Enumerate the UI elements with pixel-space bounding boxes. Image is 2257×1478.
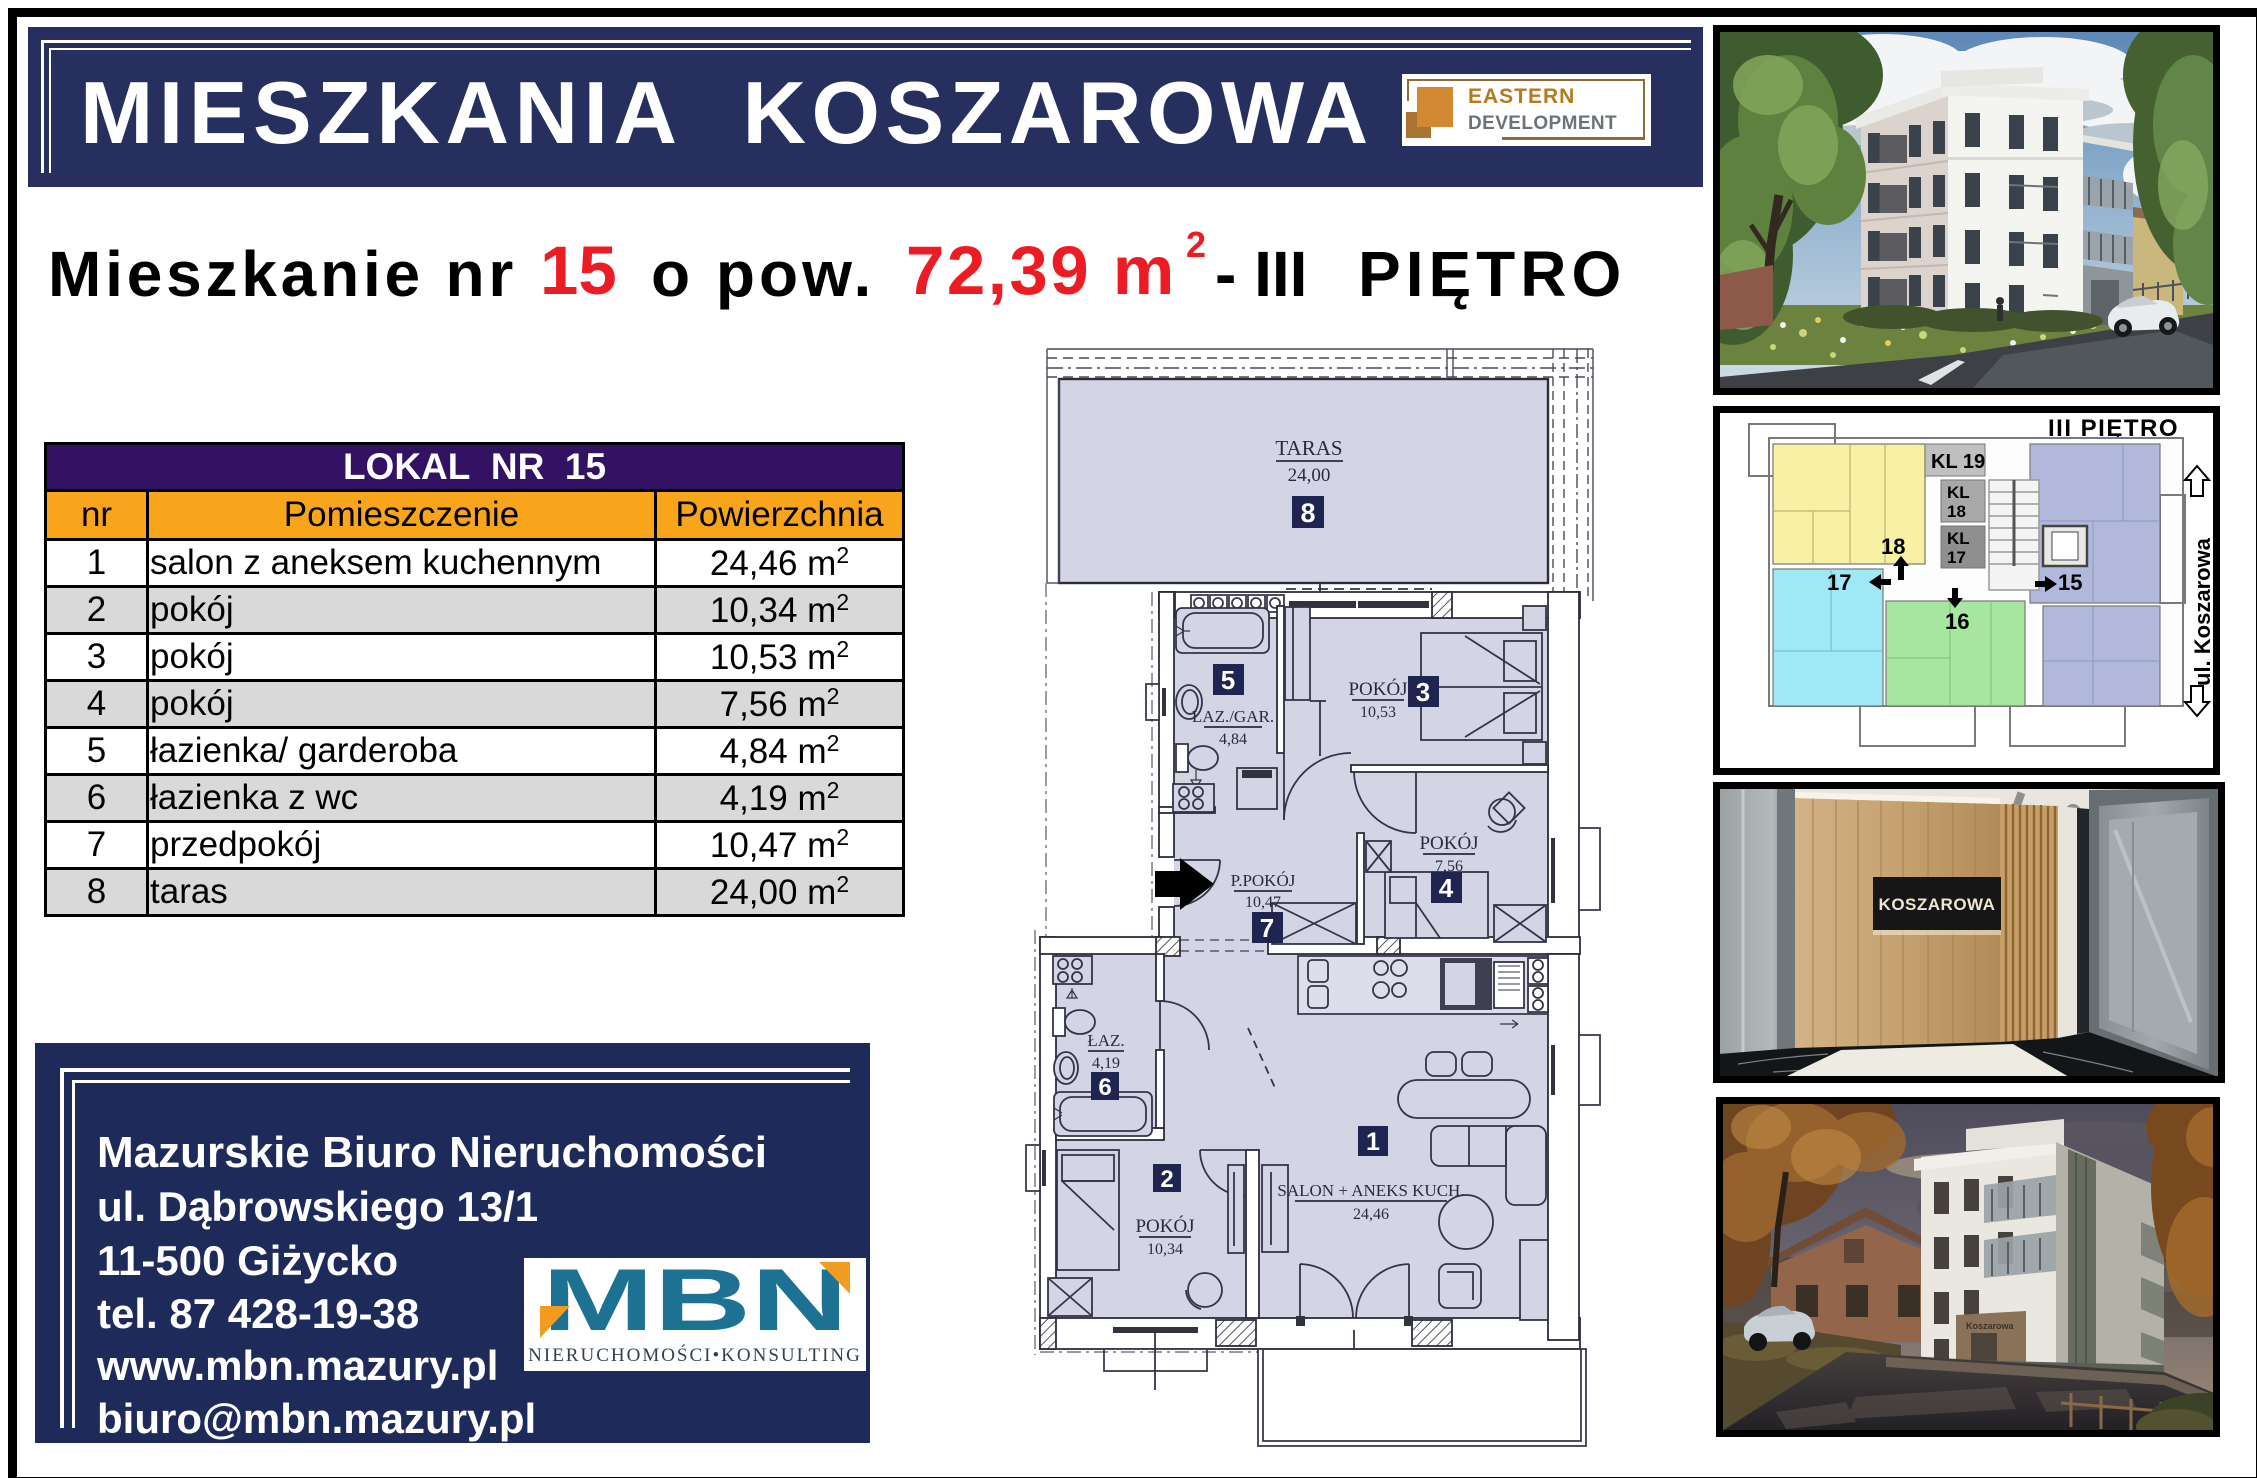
svg-text:1: 1 xyxy=(1366,1128,1380,1156)
svg-text:24,00: 24,00 xyxy=(1288,465,1331,486)
svg-text:KL: KL xyxy=(1947,483,1970,502)
svg-text:4: 4 xyxy=(1439,873,1454,903)
svg-text:Koszarowa: Koszarowa xyxy=(1966,1321,2015,1331)
svg-text:ŁAZ./GAR.: ŁAZ./GAR. xyxy=(1192,707,1274,726)
svg-text:SALON + ANEKS KUCH.: SALON + ANEKS KUCH. xyxy=(1277,1181,1464,1200)
svg-text:P.POKÓJ: P.POKÓJ xyxy=(1231,871,1296,890)
svg-text:16: 16 xyxy=(1945,609,1969,634)
svg-text:KL: KL xyxy=(1947,529,1970,548)
svg-text:KL 19: KL 19 xyxy=(1931,451,1985,473)
svg-text:15: 15 xyxy=(2058,570,2082,595)
svg-text:10,34: 10,34 xyxy=(1147,1241,1183,1258)
svg-text:MBN: MBN xyxy=(542,1258,848,1349)
svg-text:5: 5 xyxy=(1221,665,1235,695)
svg-text:ŁAZ.: ŁAZ. xyxy=(1087,1031,1124,1050)
svg-text:ul. Koszarowa: ul. Koszarowa xyxy=(2190,537,2215,686)
svg-text:POKÓJ: POKÓJ xyxy=(1348,678,1407,700)
svg-text:POKÓJ: POKÓJ xyxy=(1135,1215,1194,1237)
svg-text:4,19: 4,19 xyxy=(1092,1055,1120,1072)
svg-text:7: 7 xyxy=(1260,913,1274,943)
svg-text:18: 18 xyxy=(1947,502,1966,521)
svg-text:8: 8 xyxy=(1300,498,1315,528)
svg-text:10,47: 10,47 xyxy=(1245,894,1281,911)
svg-text:10,53: 10,53 xyxy=(1360,704,1396,721)
svg-text:4,84: 4,84 xyxy=(1219,731,1247,748)
svg-text:6: 6 xyxy=(1098,1074,1111,1101)
svg-text:KOSZAROWA: KOSZAROWA xyxy=(1879,895,1996,914)
svg-text:NIERUCHOMOŚCI•KONSULTING: NIERUCHOMOŚCI•KONSULTING xyxy=(528,1344,862,1366)
svg-text:17: 17 xyxy=(1827,570,1851,595)
svg-text:18: 18 xyxy=(1881,534,1905,559)
svg-text:2: 2 xyxy=(1160,1166,1173,1193)
svg-text:TARAS: TARAS xyxy=(1275,436,1342,460)
svg-text:3: 3 xyxy=(1416,677,1430,707)
svg-text:24,46: 24,46 xyxy=(1353,1206,1389,1223)
svg-text:POKÓJ: POKÓJ xyxy=(1419,832,1478,854)
svg-text:17: 17 xyxy=(1947,548,1966,567)
